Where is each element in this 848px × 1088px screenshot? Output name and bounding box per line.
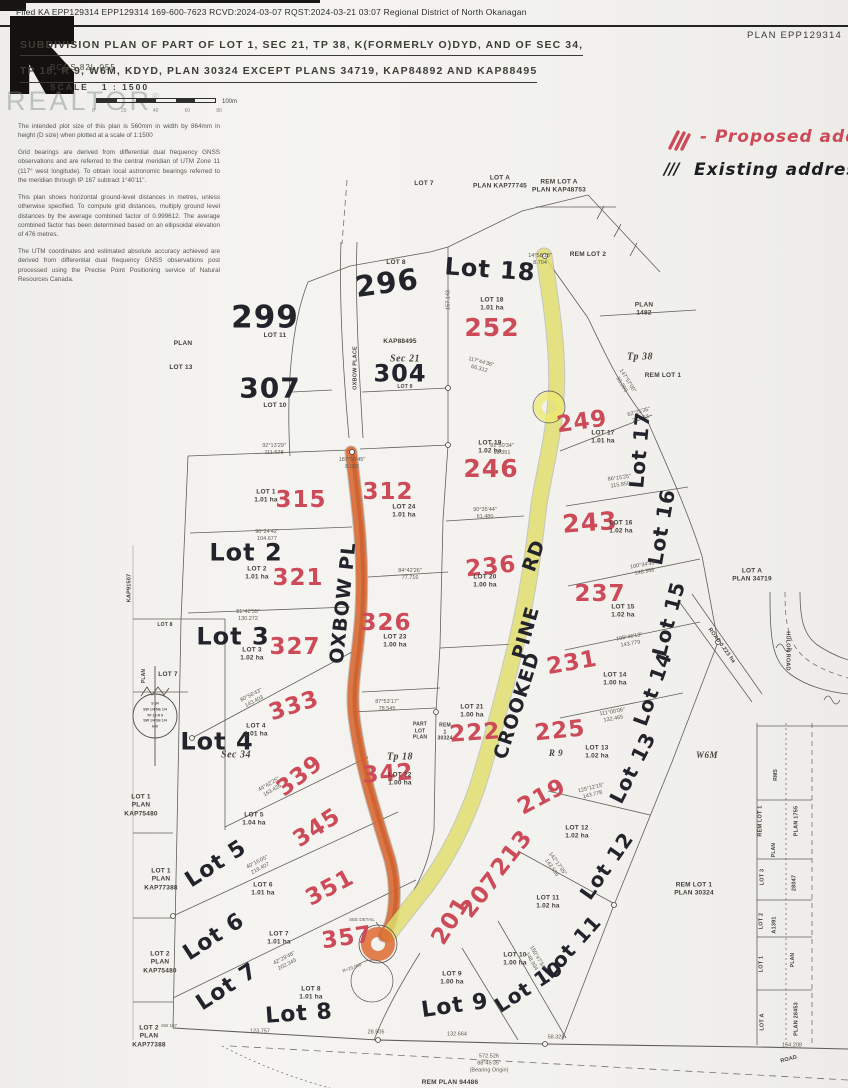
lot4-p: LOT 4 1.01 ha [244, 723, 267, 740]
kap88495: KAP88495 [383, 338, 416, 346]
dim-14-58: 14°58'18" 8.704 [528, 253, 552, 267]
r-252: 252 [464, 315, 519, 341]
part-rem-b: REM 1 30324 [438, 722, 453, 742]
d-123757: 123.757 [250, 1029, 270, 1036]
map-labels: LOT 7LOT A PLAN KAP77745REM LOT A PLAN K… [0, 0, 848, 1088]
rem-lot1-tr: REM LOT 1 [645, 372, 681, 380]
lot22-p: LOT 22 1.00 ha [388, 772, 411, 789]
lot2-kap75480: LOT 2 PLAN KAP75480 [143, 950, 176, 975]
road-br: ROAD [780, 1054, 798, 1065]
r-351: 351 [302, 865, 358, 910]
lot-a-kap77745: LOT A PLAN KAP77745 [473, 175, 527, 192]
h-lot14: Lot 14 [630, 649, 676, 728]
d-108-46: 108°46'13" 143.779 [616, 632, 645, 650]
h-crooked: CROOKED [491, 650, 544, 762]
lot17-p: LOT 17 1.01 ha [591, 430, 614, 447]
lot19-p: LOT 19 1.02 ha [478, 440, 501, 457]
h-304: 304 [373, 361, 426, 386]
r-339: 339 [272, 751, 327, 801]
plan-28453: PLAN 28453 [793, 1002, 800, 1036]
lota-vert: LOT A [759, 1013, 766, 1030]
d-92-13: 92°13'29" 111.528 [262, 443, 286, 457]
r-201: 201 [427, 893, 475, 949]
lot13-l: LOT 13 [169, 364, 192, 372]
r-326: 326 [360, 611, 411, 635]
h-lot4: Lot 4 [180, 729, 253, 754]
d-111-00: 111°00'06" 132.465 [599, 707, 627, 725]
d-28506: 28.506 [368, 1030, 385, 1037]
lot10-p: LOT 10 1.00 ha [503, 952, 526, 969]
h-pine: PINE [510, 604, 544, 661]
h-lot17: Lot 17 [626, 411, 654, 489]
lot11-299: LOT 11 [264, 332, 287, 340]
h-307: 307 [239, 373, 300, 402]
lot3-vert: LOT 3 [759, 869, 766, 886]
part-rem-a: PART LOT PLAN [413, 721, 427, 741]
lot8-left: LOT 8 [157, 622, 172, 629]
sec-34: Sec 34 [221, 750, 251, 761]
lot1-kap75480: LOT 1 PLAN KAP75480 [124, 793, 157, 818]
h-lot2: Lot 2 [209, 540, 282, 565]
tp-38: Tp 38 [627, 352, 653, 363]
a-1391: A1391 [771, 916, 778, 933]
r-342: 342 [362, 760, 415, 788]
lot12-p: LOT 12 1.02 ha [565, 825, 588, 842]
d-84-42: 84°42'26" 77.716 [398, 568, 422, 582]
h-rd: RD [520, 537, 550, 574]
d-142-17: 142°17'35" 143.536 [541, 851, 568, 881]
d-bearing: 572.526 88°45'35" (Bearing Origin) [470, 1054, 509, 1075]
lot2-kap77388: LOT 2 PLAN KAP77388 [132, 1024, 165, 1049]
h-lot12: Lot 12 [576, 829, 637, 904]
sec-21: Sec 21 [390, 354, 420, 365]
tp-18: Tp 18 [387, 752, 413, 763]
see-detail: SEE DETAIL [349, 917, 375, 923]
sw-187: SW 187 [161, 1023, 177, 1029]
d-r23: R=23.000 [342, 962, 362, 974]
lot11-p: LOT 11 1.02 ha [536, 895, 559, 912]
d-187-50: 187°50'45" 8.002 [339, 457, 366, 471]
d-100-34: 100°34'43" 148.366 [630, 560, 659, 578]
r-225: 225 [533, 716, 586, 745]
h-oxbow: OXBOW PL [328, 541, 361, 665]
h-296: 296 [353, 264, 420, 303]
h-lot5: Lot 5 [181, 836, 250, 892]
section-compass-text: S 34 SW 1/4 NE 1/4 TP 18 R 9 SW 1/4 SE 1… [143, 702, 167, 731]
scanned-subdivision-plan: Filed KA EPP129314 EPP129314 169-600-762… [0, 0, 848, 1088]
r-249: 249 [555, 406, 609, 437]
h-lot16: Lot 16 [645, 487, 679, 566]
n157143: 157.143 [446, 290, 453, 310]
d-125-12: 125°12'15" 143.778 [577, 782, 606, 802]
plan-v2: PLAN [771, 843, 778, 857]
rms: RMS [773, 769, 780, 781]
lot21-p: LOT 21 1.00 ha [460, 704, 483, 721]
d-86-15: 86°15'25" 115.850 [607, 474, 632, 491]
r-231: 231 [545, 647, 599, 680]
kap91507: KAP91507 [126, 574, 133, 603]
h-lot11: Lot 11 [538, 911, 605, 982]
r-9: R 9 [549, 748, 563, 758]
lot24-p: LOT 24 1.01 ha [392, 504, 415, 521]
d-87-53: 87°53'17" 78.545 [375, 699, 399, 713]
plan-l: PLAN [174, 340, 193, 348]
r-219: 219 [514, 774, 570, 819]
lot7-p: LOT 7 1.01 ha [267, 931, 290, 948]
r-312: 312 [362, 480, 413, 504]
plan-1755: PLAN 1755 [793, 806, 800, 837]
oxbow-place: OXBOW PLACE [352, 346, 359, 390]
d-132664: 132.664 [447, 1032, 467, 1039]
rem-lot1-vert: REM LOT 1 [757, 805, 764, 836]
road-0223: ROAD 0.223 ha [706, 627, 736, 665]
r-207: 207 [456, 867, 506, 922]
r-345: 345 [289, 804, 345, 852]
lot1-vert: LOT 1 [758, 956, 765, 973]
lot1-p: LOT 1 1.01 ha [254, 489, 277, 506]
d-147-57: 147°57'00" 93.203 [611, 368, 637, 398]
r-236: 236 [464, 552, 517, 581]
r-357: 357 [320, 922, 374, 953]
lot9-p: LOT 9 1.00 ha [440, 971, 463, 988]
r-246: 246 [463, 456, 518, 482]
plan-v3: PLAN [790, 953, 797, 967]
d-58325: 58.325 [548, 1035, 565, 1042]
lot15-p: LOT 15 1.02 ha [611, 604, 634, 621]
d-81-50: 81°50'34" 19.351 [490, 443, 514, 457]
lot16-p: LOT 16 1.02 ha [609, 520, 632, 537]
r-321: 321 [272, 566, 323, 590]
r-315: 315 [275, 488, 326, 512]
lot18-p: LOT 18 1.01 ha [480, 297, 503, 314]
rem-lot-a: REM LOT A PLAN KAP48753 [532, 179, 586, 196]
lot8-p: LOT 8 1.01 ha [299, 986, 322, 1003]
d-62-25: 62°25'35" 22.052 [627, 406, 653, 425]
r-222: 222 [449, 719, 502, 747]
h-299: 299 [231, 302, 299, 335]
r-237: 237 [574, 582, 625, 606]
h-lot18: Lot 18 [444, 254, 537, 285]
lot8-top: LOT 8 [386, 259, 405, 267]
lot3-p: LOT 3 1.02 ha [240, 647, 263, 664]
rem-plan-94486: REM PLAN 94486 [422, 1079, 479, 1087]
rem-lot1-30324: REM LOT 1 PLAN 30324 [674, 882, 714, 899]
d-44-42: 44°42'25" 163.426 [257, 776, 284, 800]
d-81-42: 81°42'55" 130.272 [236, 609, 260, 623]
d-117-44: 117°44'36" 66.312 [466, 356, 495, 376]
lot2-vert: LOT 2 [758, 913, 765, 930]
h-lot7: Lot 7 [192, 959, 261, 1015]
rem-lot-2: REM LOT 2 [570, 251, 606, 259]
lot14-p: LOT 14 1.00 ha [603, 672, 626, 689]
h-lot3: Lot 3 [196, 624, 269, 649]
r-213: 213 [487, 825, 537, 880]
w6m: W6M [696, 750, 718, 760]
h-lot9: Lot 9 [420, 990, 490, 1022]
d-154208: 154.208 [782, 1043, 802, 1050]
plan-left-vert: PLAN [141, 669, 148, 683]
h-lot8: Lot 8 [264, 1000, 333, 1028]
lot1-kap77388: LOT 1 PLAN KAP77388 [144, 867, 177, 892]
d-80-56: 80°56'43" 143.403 [239, 688, 266, 711]
d-150-47: 150°47'34" 148.934 [521, 945, 546, 975]
lot20-p: LOT 20 1.00 ha [473, 574, 496, 591]
d-42-29: 42°29'46" 202.345 [272, 951, 299, 974]
lot5-p: LOT 5 1.04 ha [242, 812, 265, 829]
d-40-15: 40°15'05" 219.407 [245, 855, 272, 878]
h-lot13: Lot 13 [606, 729, 660, 807]
lot-a-34719: LOT A PLAN 34719 [732, 568, 772, 585]
d-90-24: 90°24'42" 104.677 [255, 529, 279, 543]
lot2-p: LOT 2 1.01 ha [245, 566, 268, 583]
d-90-35: 90°35'44" 61.480 [473, 507, 497, 521]
lot6-p: LOT 6 1.01 ha [251, 882, 274, 899]
h-lot10: Lot 10 [491, 957, 567, 1016]
r-243: 243 [562, 508, 619, 538]
lot10-307: LOT 10 [263, 402, 286, 410]
hulon-road: HULON ROAD [783, 631, 790, 670]
n-28047: 28047 [791, 875, 798, 891]
r-333: 333 [266, 687, 322, 726]
lot7-left: LOT 7 [158, 671, 177, 679]
lot7-top: LOT 7 [414, 180, 433, 188]
lot23-p: LOT 23 1.00 ha [383, 634, 406, 651]
lot13-p: LOT 13 1.02 ha [585, 745, 608, 762]
r-327: 327 [269, 635, 320, 659]
plan-1482: PLAN 1482 [635, 302, 654, 319]
h-lot15: Lot 15 [649, 579, 689, 659]
h-lot6: Lot 6 [179, 909, 248, 965]
lot9-304: LOT 9 [397, 384, 412, 391]
